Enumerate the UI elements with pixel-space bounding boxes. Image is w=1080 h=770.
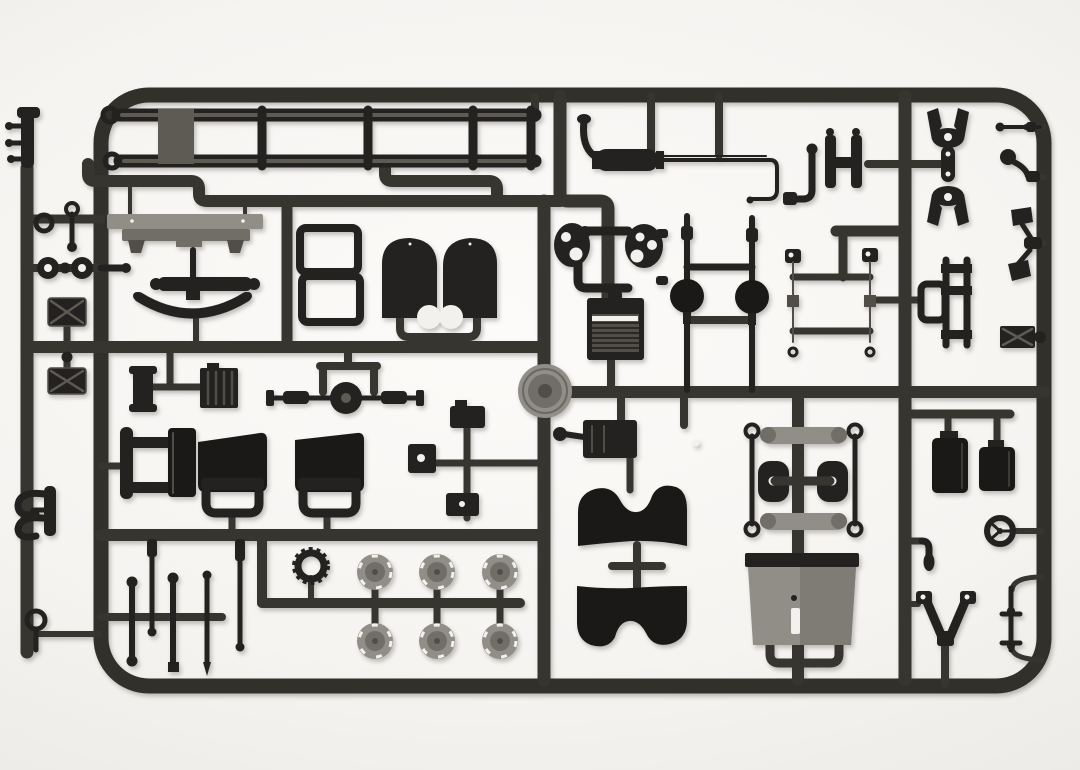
windshield-u-runner <box>770 642 839 663</box>
tie-rods <box>147 539 245 652</box>
door-rail-rod <box>1002 588 1020 650</box>
seat-subframe <box>120 427 196 499</box>
front-axle-spring-cluster <box>133 250 260 314</box>
pedal-crank <box>783 144 818 206</box>
ladder-bracket <box>941 260 972 345</box>
chassis-ladder-rails <box>103 108 535 168</box>
leaf-spring-pair <box>785 248 878 356</box>
flywheel-disc <box>518 364 572 418</box>
front-axle-kingpin-assembly <box>746 425 862 536</box>
toolbox-2 <box>48 352 86 395</box>
firewall-panel <box>745 553 859 645</box>
ribbed-tank-box <box>200 363 238 408</box>
radiator-core <box>587 291 644 360</box>
engine-accessory-blocks <box>408 400 485 516</box>
backing-plate-right <box>625 224 668 285</box>
cushion-boxes <box>932 431 1015 493</box>
exhaust-pipe-assembly <box>577 114 777 204</box>
running-boards <box>107 214 263 253</box>
toolbox-1 <box>48 298 86 326</box>
steering-wheel <box>987 518 1013 544</box>
starting-crank <box>922 541 935 571</box>
bench-seat-2 <box>295 433 364 513</box>
bench-seat-1 <box>198 433 267 513</box>
sprue-photo <box>0 0 1080 770</box>
frame-eyelets <box>37 257 131 279</box>
fender-valance-pair <box>382 238 497 329</box>
bulb-horn <box>1000 149 1040 182</box>
eyelet-pin-pair <box>36 203 78 252</box>
timing-gear <box>294 549 329 584</box>
steering-rod-cluster <box>127 571 212 677</box>
radiator-shell-frames <box>300 228 360 322</box>
engine-mount-frame <box>825 128 862 188</box>
windshield-stanchion <box>916 591 976 646</box>
rear-axle-driveshaft <box>266 382 424 414</box>
sprue-drawing <box>0 0 1080 770</box>
hinge-pin-bracket <box>5 107 40 168</box>
backing-plate-left <box>554 223 628 288</box>
muffler-cylinder <box>129 366 157 412</box>
gear-lever <box>996 122 1041 132</box>
halfshaft-pair <box>670 216 769 390</box>
